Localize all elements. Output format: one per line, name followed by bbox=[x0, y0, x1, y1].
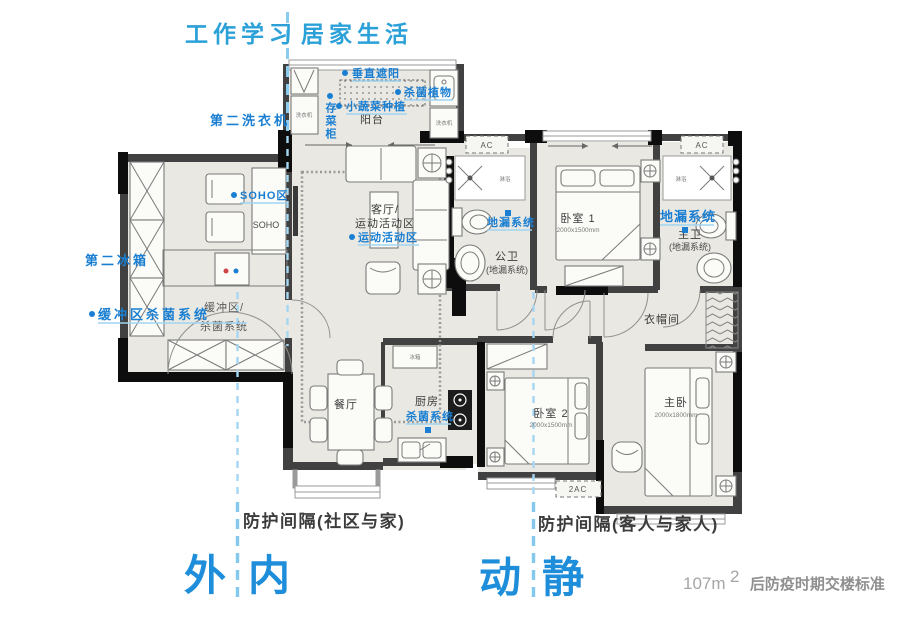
floorplan-canvas: AC AC 2AC 洗衣机 洗衣机 bbox=[0, 0, 900, 636]
nightstand bbox=[641, 238, 660, 260]
bed bbox=[505, 378, 589, 464]
label-master-bedroom-dims: 2000x1800mm bbox=[655, 412, 698, 419]
ac-unit-bottom: 2AC bbox=[556, 481, 601, 497]
label-bedroom1: 卧室 1 bbox=[560, 211, 595, 225]
ann-vegetable-planting: 小蔬菜种植 bbox=[345, 99, 406, 113]
armchair bbox=[366, 262, 400, 294]
nightstand bbox=[716, 352, 736, 372]
label-public-bath: 公卫 bbox=[495, 251, 519, 263]
pedestal-sink bbox=[455, 245, 485, 281]
disinfection-cabinet bbox=[215, 253, 249, 285]
plant-stand bbox=[418, 264, 446, 294]
label-living-1: 客厅/ bbox=[371, 202, 399, 216]
area-note: 107m 2 后防疫时期交楼标准 bbox=[683, 567, 885, 593]
ann-kitchen-sterilizing: 杀菌系统 bbox=[406, 409, 454, 423]
nightstand bbox=[641, 160, 660, 182]
dining-table bbox=[328, 374, 374, 450]
plant-stand bbox=[418, 148, 446, 178]
area-superscript: 2 bbox=[730, 567, 739, 586]
label-living-2: 运动活动区 bbox=[355, 217, 415, 230]
kitchen-sink bbox=[398, 438, 446, 462]
shoe-cabinets bbox=[168, 340, 284, 370]
zone-outside: 外 bbox=[184, 552, 226, 599]
zone-inside: 内 bbox=[248, 552, 290, 599]
hanger-rack bbox=[706, 292, 738, 348]
area-value: 107m bbox=[683, 574, 726, 593]
label-dining: 餐厅 bbox=[334, 397, 358, 411]
ann-buffer-sterilizing: 缓冲区杀菌系统 bbox=[98, 307, 210, 322]
ann-second-washer: 第二洗衣机 bbox=[210, 113, 290, 128]
bed bbox=[645, 368, 712, 496]
label-master-bath: 主卫 bbox=[678, 228, 702, 241]
ann-vertical-shading: 垂直遮阳 bbox=[352, 66, 400, 80]
bullet-marker bbox=[336, 103, 342, 109]
area-standard: 后防疫时期交楼标准 bbox=[750, 575, 885, 593]
bullet-marker bbox=[89, 311, 95, 317]
ac-left-label: AC bbox=[480, 141, 493, 150]
ac-unit-left: AC bbox=[466, 136, 508, 153]
toilet bbox=[452, 208, 492, 236]
ann-sterilizing-plants: 杀菌植物 bbox=[404, 85, 452, 99]
barrier-guest-label: 防护间隔(客人与家人) bbox=[538, 514, 719, 534]
bullet-marker bbox=[231, 192, 237, 198]
washer-right-label: 洗衣机 bbox=[436, 119, 453, 127]
ann-soho-zone: SOHO区 bbox=[240, 189, 288, 202]
zone-quiet: 静 bbox=[542, 554, 584, 601]
label-bedroom1-dims: 2000x1500mm bbox=[557, 227, 600, 234]
shower-public-label: 淋浴 bbox=[499, 175, 511, 183]
label-master-bedroom: 主卧 bbox=[664, 396, 688, 409]
stove bbox=[448, 390, 472, 430]
fridge-label: 冰箱 bbox=[409, 353, 421, 361]
ac-bottom-label: 2AC bbox=[569, 485, 588, 494]
shower-master-label: 淋浴 bbox=[675, 175, 687, 183]
nightstand bbox=[716, 476, 736, 496]
ann-floor-drain-public: 地漏系统 bbox=[487, 215, 535, 229]
zone-active: 动 bbox=[479, 554, 521, 601]
barrier-community-label: 防护间隔(社区与家) bbox=[243, 511, 405, 531]
bullet-marker bbox=[327, 93, 333, 99]
vanity-sink bbox=[697, 253, 731, 283]
nightstand bbox=[487, 372, 504, 390]
bullet-marker bbox=[342, 70, 348, 76]
label-public-bath-note: (地漏系统) bbox=[486, 264, 528, 275]
ann-second-fridge: 第二冰箱 bbox=[85, 253, 149, 268]
label-master-bath-note: (地漏系统) bbox=[669, 241, 711, 252]
washer-left-label: 洗衣机 bbox=[296, 111, 313, 119]
label-closet: 衣帽间 bbox=[644, 312, 680, 326]
ann-floor-drain-master: 地漏系统 bbox=[660, 209, 716, 224]
header-home-life: 居家生活 bbox=[301, 21, 413, 47]
ac-unit-right: AC bbox=[681, 136, 723, 153]
label-soho: SOHO bbox=[253, 220, 280, 230]
tv bbox=[293, 186, 298, 236]
bullet-marker bbox=[395, 89, 401, 95]
label-bedroom2-dims: 2000x1500mm bbox=[530, 422, 573, 429]
soho-desk bbox=[252, 168, 286, 254]
ac-right-label: AC bbox=[695, 141, 708, 150]
square-marker bbox=[505, 210, 511, 216]
chair bbox=[612, 442, 642, 472]
fridge: 冰箱 bbox=[393, 346, 437, 368]
washing-machine-right: 洗衣机 bbox=[430, 108, 458, 138]
washing-machine-left: 洗衣机 bbox=[291, 96, 318, 134]
sofa-side bbox=[413, 180, 449, 270]
square-marker bbox=[425, 427, 431, 433]
label-bedroom2: 卧室 2 bbox=[533, 406, 568, 420]
label-kitchen: 厨房 bbox=[415, 395, 439, 408]
ann-sports-zone: 运动活动区 bbox=[358, 230, 418, 244]
nightstand bbox=[487, 448, 504, 466]
header-work-study: 工作学习 bbox=[185, 21, 297, 47]
bullet-marker bbox=[349, 234, 355, 240]
square-marker bbox=[682, 227, 688, 233]
ann-vegetable-cabinet: 存菜柜 bbox=[324, 101, 338, 141]
wardrobe bbox=[487, 344, 547, 369]
